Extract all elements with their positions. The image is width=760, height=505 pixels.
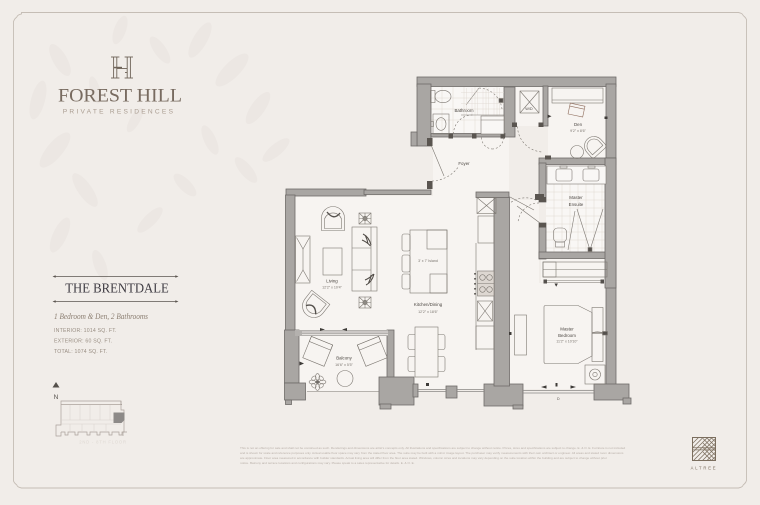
svg-text:9'2" x 8'6": 9'2" x 8'6" [570,129,586,133]
svg-text:12'2" x 18'6": 12'2" x 18'6" [418,310,438,314]
svg-text:TOTAL: 1074 SQ. FT.: TOTAL: 1074 SQ. FT. [54,349,107,355]
svg-text:Bathroom: Bathroom [454,108,473,113]
svg-text:3' x 7' Island: 3' x 7' Island [418,259,438,263]
svg-text:notice. Balcony and terrace lo: notice. Balcony and terrace locations an… [240,461,415,465]
svg-text:2ND - 8TH FLOOR: 2ND - 8TH FLOOR [79,440,127,445]
svg-text:16'6" x 5'5": 16'6" x 5'5" [335,363,353,367]
svg-text:11'2" x 10'10": 11'2" x 10'10" [556,340,578,344]
svg-text:ALTREE: ALTREE [691,466,718,471]
svg-text:12'2" x 10'4": 12'2" x 10'4" [322,286,342,290]
svg-text:Master: Master [560,327,574,332]
svg-text:W/D: W/D [525,107,533,111]
svg-text:Balcony: Balcony [336,356,352,361]
svg-text:1 Bedroom & Den, 2 Bathrooms: 1 Bedroom & Den, 2 Bathrooms [54,312,148,321]
svg-text:THE BRENTDALE: THE BRENTDALE [65,281,169,296]
svg-text:Den: Den [574,122,583,127]
svg-text:Bedroom: Bedroom [558,333,576,338]
svg-text:FOREST HILL: FOREST HILL [58,86,182,107]
svg-text:INTERIOR: 1014 SQ. FT.: INTERIOR: 1014 SQ. FT. [54,328,117,334]
svg-text:Living: Living [326,279,338,284]
svg-text:EXTERIOR: 60 SQ. FT.: EXTERIOR: 60 SQ. FT. [54,339,112,345]
svg-text:Master: Master [569,195,583,200]
svg-text:are approximate. Floor area me: are approximate. Floor area measured in … [240,456,607,460]
svg-text:Kitchen/Dining: Kitchen/Dining [414,302,443,307]
svg-text:and is shown for scale and ref: and is shown for scale and reference pur… [240,451,624,455]
svg-text:Foyer: Foyer [458,161,470,166]
svg-text:This is not an offering for sa: This is not an offering for sale and sha… [240,446,625,450]
svg-text:PRIVATE RESIDENCES: PRIVATE RESIDENCES [63,109,175,116]
svg-text:D: D [557,397,560,401]
svg-text:N: N [54,394,59,401]
svg-text:Ensuite: Ensuite [569,202,584,207]
